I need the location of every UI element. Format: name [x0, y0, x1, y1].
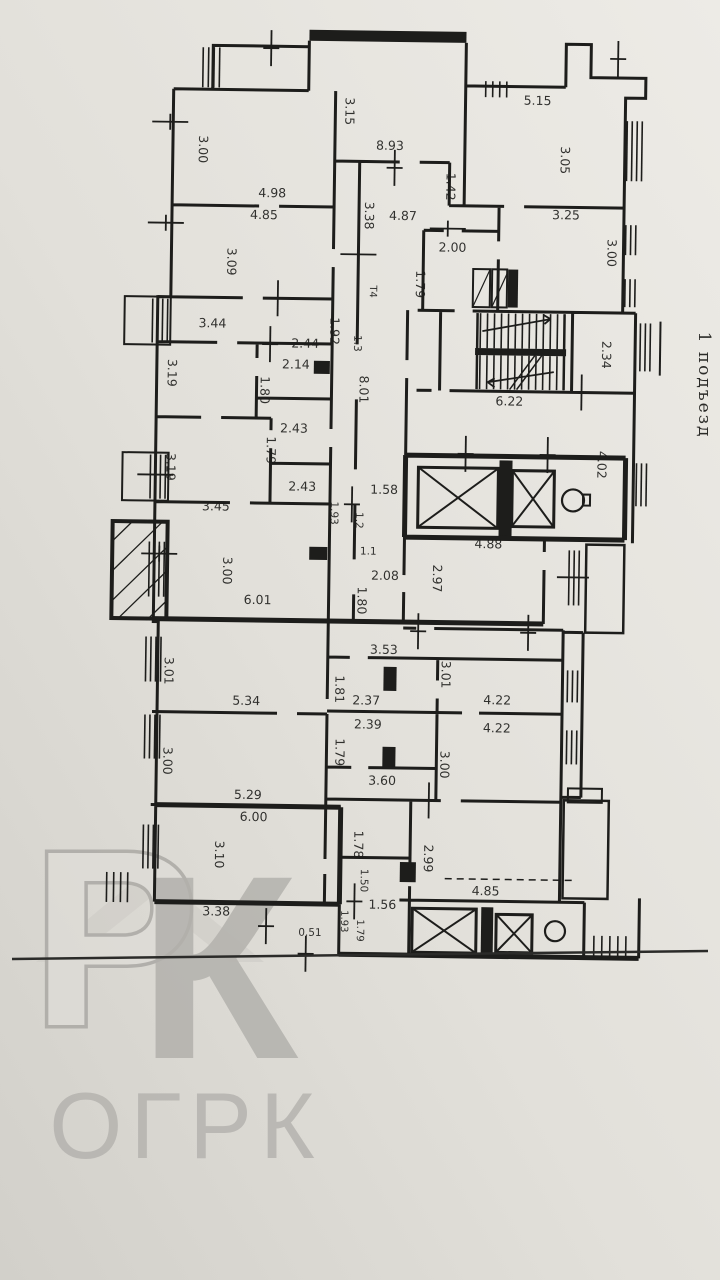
dimension-label: 3.25	[552, 207, 580, 222]
dimension-label: 3.19	[163, 453, 178, 481]
dimension-label: 2.37	[352, 692, 380, 707]
floorplan-svg: РКОГРК	[0, 0, 720, 1280]
dimension-label: 1.80	[354, 586, 369, 614]
dimension-label: 2.00	[439, 240, 467, 255]
dimension-label: 3.53	[370, 642, 398, 657]
dimension-label: 3.01	[438, 661, 453, 689]
dimension-label: 3.00	[160, 747, 175, 775]
dimension-label: 1.58	[370, 482, 398, 497]
dimension-label: 1.80	[257, 376, 272, 404]
margin-annotations: 1 подъезд	[694, 332, 714, 439]
dimension-label: 5.15	[524, 93, 552, 108]
dimension-label: 3.10	[212, 840, 227, 868]
dimension-label: 6.01	[244, 592, 272, 607]
dimension-label: 1.93	[338, 910, 349, 932]
dimension-label: 4.98	[258, 185, 286, 200]
dimension-label: 4.88	[474, 536, 502, 551]
dimension-label: 4.22	[483, 720, 511, 735]
dimension-label: 3.05	[558, 146, 573, 174]
dimension-label: 1.3	[351, 335, 363, 352]
dimension-label: 1.92	[327, 317, 342, 345]
dimension-label: 3.15	[342, 97, 357, 125]
dimension-label: 1.56	[368, 897, 396, 912]
dimension-label: 3.09	[224, 248, 239, 276]
dimension-label: 2.43	[288, 478, 316, 493]
dimension-label: 3.38	[362, 202, 377, 230]
dimension-label: 3.60	[368, 773, 396, 788]
dimension-label: 5.29	[234, 787, 262, 802]
dimension-label: 4.85	[472, 883, 500, 898]
dimension-label: 1.93	[328, 501, 340, 525]
dimension-label: 1.79	[413, 270, 428, 298]
dimension-label: 4.87	[389, 208, 417, 223]
dimension-label: 1.79	[263, 436, 278, 464]
dimension-label: 2.14	[282, 356, 310, 371]
vent-label: Т4	[367, 284, 378, 298]
dimension-label: 1.78	[351, 830, 366, 858]
dimension-label: 3.19	[165, 359, 180, 387]
watermark-text: ОГРК	[49, 1073, 322, 1178]
dimension-label: 0.51	[298, 927, 322, 939]
dimension-label: 3.00	[604, 239, 619, 267]
dimension-label: 3.00	[196, 135, 211, 163]
dimension-label: 1.1	[360, 545, 377, 557]
dimension-label: 3.01	[161, 657, 176, 685]
dimension-label: 8.01	[356, 375, 371, 403]
dimension-label: 2.08	[371, 568, 399, 583]
dimension-label: 3.45	[202, 498, 230, 513]
dimension-label: 3.00	[220, 557, 235, 585]
dimension-label: 4.85	[250, 207, 278, 222]
watermark-logo: РКОГРК	[32, 799, 323, 1178]
dimension-label: 4.02	[594, 451, 609, 479]
dimension-label: 1.2	[353, 512, 365, 529]
dimension-label: 1.81	[332, 675, 347, 703]
dimension-label: 2.99	[421, 844, 436, 872]
scanned-floorplan-photo: РКОГРК	[0, 0, 720, 1280]
dimension-label: 1.50	[358, 869, 370, 893]
dimension-label: 8.93	[376, 138, 404, 153]
entrance-label: 1 подъезд	[694, 332, 714, 439]
dimension-label: 2.43	[280, 420, 308, 435]
dimension-label: 2.44	[291, 335, 319, 350]
dimension-label: 2.39	[354, 716, 382, 731]
dimension-label: 3.44	[198, 315, 226, 330]
dimension-label: 5.34	[232, 693, 260, 708]
dimension-label: 6.22	[495, 393, 523, 408]
dimension-label: 6.00	[240, 809, 268, 824]
dimension-label: 2.34	[599, 341, 614, 369]
dimension-label: 4.22	[483, 692, 511, 707]
dimension-label: 1.42	[443, 173, 458, 201]
dimension-label: 3.00	[437, 751, 452, 779]
dimension-label: 1.79	[354, 919, 365, 941]
dimension-label: 1.79	[332, 738, 347, 766]
dimension-label: 3.38	[202, 903, 230, 918]
dimension-label: 2.97	[430, 565, 445, 593]
